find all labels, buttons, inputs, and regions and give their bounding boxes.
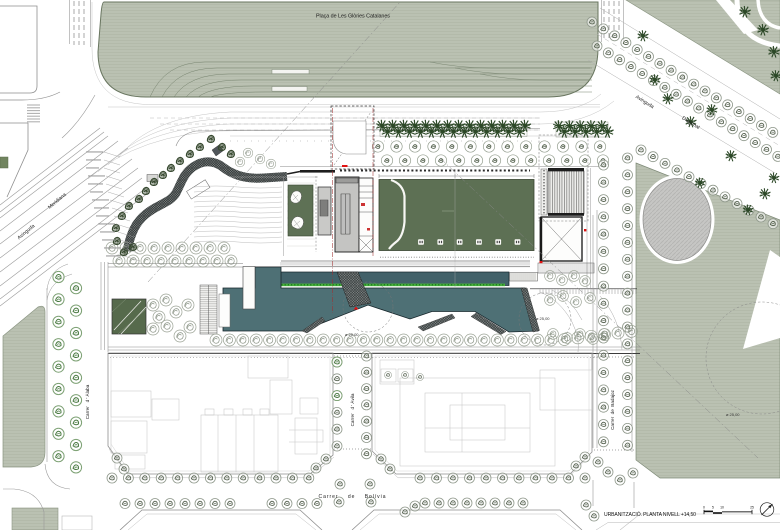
svg-text:⌀ 25,00: ⌀ 25,00 [726, 412, 740, 417]
svg-text:Carrer de Badajoz: Carrer de Badajoz [610, 389, 615, 430]
svg-text:5: 5 [712, 506, 714, 510]
svg-text:0: 0 [703, 506, 705, 510]
svg-text:Plaça de Les Glòries Catalanes: Plaça de Les Glòries Catalanes [316, 14, 390, 20]
svg-text:10: 10 [720, 506, 724, 510]
svg-text:Carrer d ’ Àlaba: Carrer d ’ Àlaba [84, 384, 90, 419]
svg-text:Carrer d ’ Àvila: Carrer d ’ Àvila [349, 393, 355, 426]
svg-text:⌀ 25,00: ⌀ 25,00 [536, 316, 550, 321]
svg-text:⌀ 25,00: ⌀ 25,00 [345, 332, 359, 337]
svg-text:URBANITZACIÓ. PLANTA NIVELL +1: URBANITZACIÓ. PLANTA NIVELL +14,50 [604, 511, 696, 518]
svg-text:Carrer de Bolívia: Carrer de Bolívia [319, 494, 386, 500]
svg-text:25: 25 [750, 506, 754, 510]
